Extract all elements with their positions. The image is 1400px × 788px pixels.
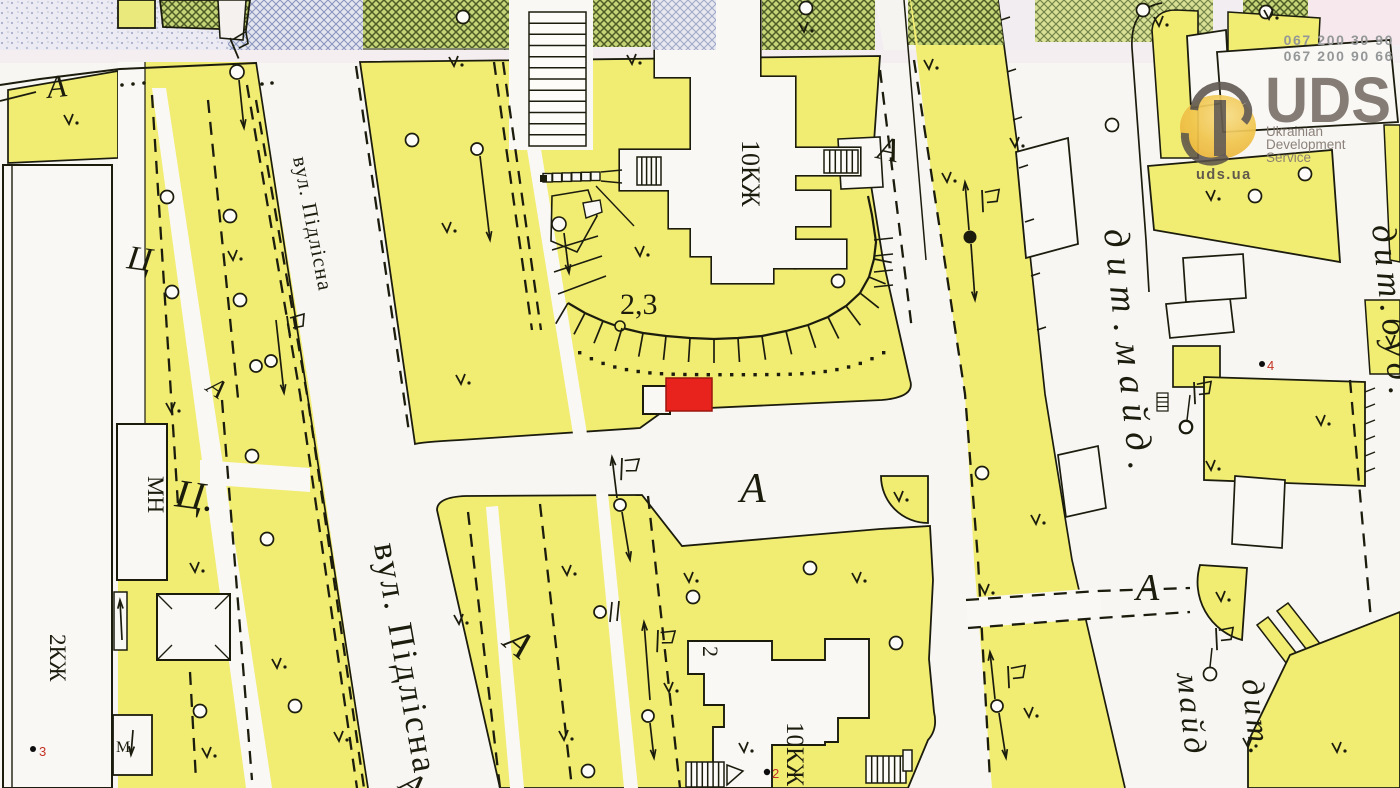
svg-text:А: А bbox=[737, 466, 766, 512]
svg-text:М: М bbox=[116, 739, 130, 756]
svg-text:Service: Service bbox=[1266, 150, 1311, 165]
svg-text:2,3: 2,3 bbox=[620, 288, 658, 321]
svg-text:uds.ua: uds.ua bbox=[1196, 167, 1252, 183]
svg-text:10КЖ: 10КЖ bbox=[736, 140, 765, 207]
svg-text:МН: МН bbox=[143, 476, 168, 513]
svg-text:2: 2 bbox=[698, 646, 723, 657]
svg-text:2: 2 bbox=[772, 766, 779, 781]
svg-text:4: 4 bbox=[1267, 358, 1274, 373]
svg-text:067 200 90 66: 067 200 90 66 bbox=[1284, 48, 1394, 64]
svg-text:067 200 30 90: 067 200 30 90 bbox=[1284, 32, 1394, 48]
svg-text:Ц.: Ц. bbox=[172, 470, 218, 520]
svg-text:А: А bbox=[1133, 567, 1160, 609]
svg-text:10КЖ: 10КЖ bbox=[781, 722, 808, 787]
svg-text:2КЖ: 2КЖ bbox=[45, 634, 70, 682]
svg-text:3: 3 bbox=[39, 744, 46, 759]
